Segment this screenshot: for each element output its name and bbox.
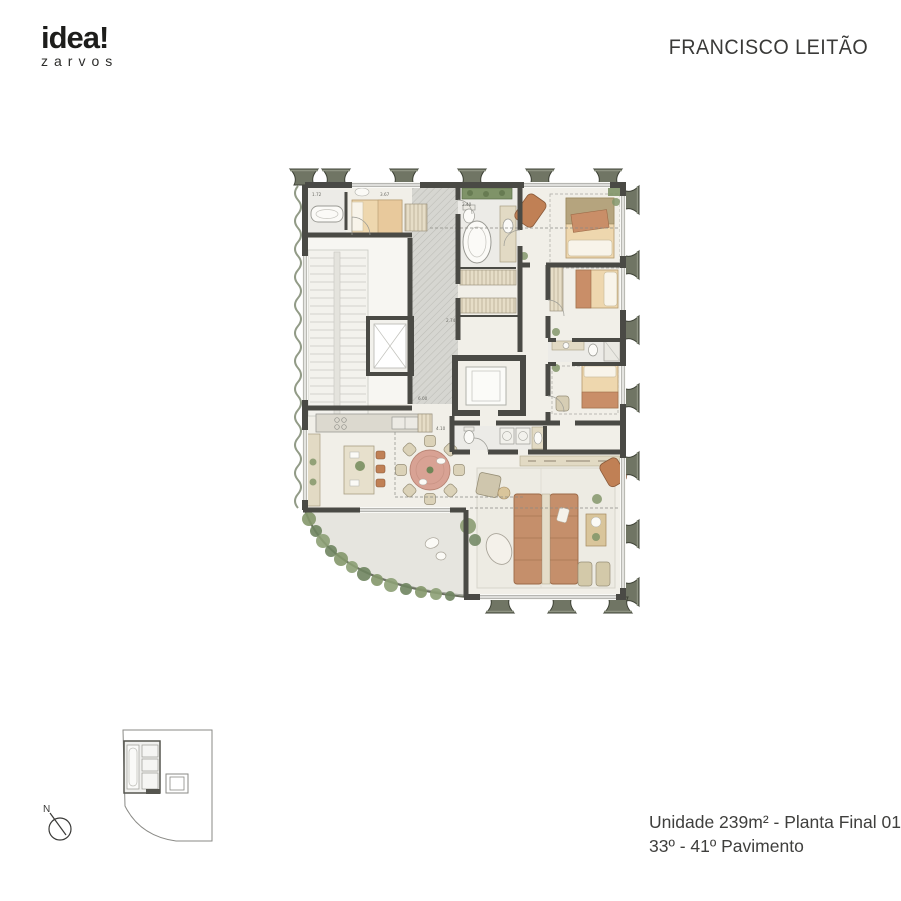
floor-plan: 1.72 3.67 2.40 2.74 6.00 4.10 [285,160,647,622]
dim-label: 2.40 [462,202,472,207]
kitchen-island [344,446,374,494]
accent-armchair [475,472,501,498]
floor-plan-svg: 1.72 3.67 2.40 2.74 6.00 4.10 [285,160,647,622]
key-plan-svg: N [35,718,220,850]
service-wardrobe [405,204,427,231]
laundry-lavabo [452,426,545,450]
logo-wordmark: idea! [41,22,118,53]
dim-label: 3.67 [380,192,390,197]
tall-cabinet [306,434,320,506]
unit-info-line1: Unidade 239m² - Planta Final 01 [649,810,901,834]
stair-core [308,238,412,416]
living-room [460,456,628,588]
project-title: FRANCISCO LEITÃO [669,36,868,60]
dim-label: 1.72 [312,192,322,197]
dim-label: 4.10 [436,426,446,431]
brand-logo: idea! zarvos [41,22,118,68]
island-stools [376,451,385,487]
service-elevator [368,318,412,374]
dim-label: 6.00 [418,396,428,401]
bathroom-2 [548,340,622,362]
unit-info: Unidade 239m² - Planta Final 01 33º - 41… [649,810,901,858]
unit-info-line2: 33º - 41º Pavimento [649,834,901,858]
sofa [514,494,578,584]
north-arrow: N [43,804,71,840]
keyplan-core [124,741,160,794]
left-vegetation-border [295,186,301,508]
bed-2 [576,270,618,308]
maid-bed [352,200,402,233]
key-plan: N [35,718,220,850]
bedroom2-wardrobe [550,267,563,311]
dim-label: 2.74 [446,318,456,323]
logo-subbrand: zarvos [41,54,118,68]
coffee-side-table [586,514,606,546]
toilet [463,205,475,223]
vanity [500,206,516,262]
bed-3 [582,364,618,408]
north-label: N [43,804,50,815]
terrace [302,510,466,601]
brochure-page: idea! zarvos FRANCISCO LEITÃO [0,0,901,901]
keyplan-elevator [166,774,188,793]
